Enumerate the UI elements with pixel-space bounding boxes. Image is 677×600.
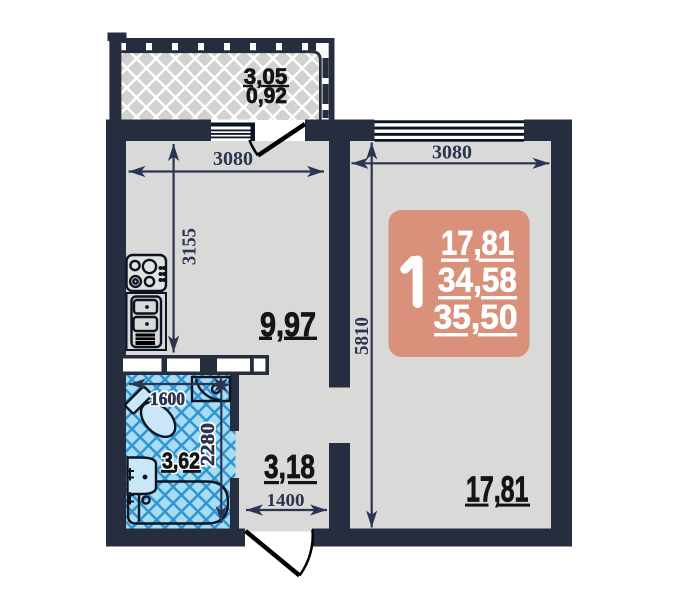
svg-text:17,81: 17,81: [466, 469, 529, 510]
svg-text:3,62: 3,62: [162, 448, 200, 474]
svg-text:1600: 1600: [150, 389, 185, 410]
svg-text:34,58: 34,58: [438, 262, 517, 300]
svg-text:5810: 5810: [351, 317, 373, 355]
svg-text:3080: 3080: [213, 148, 253, 170]
svg-text:3,18: 3,18: [264, 448, 315, 485]
svg-text:3080: 3080: [432, 142, 472, 164]
svg-text:3155: 3155: [179, 228, 201, 265]
svg-text:2280: 2280: [197, 423, 219, 466]
svg-text:0,92: 0,92: [246, 83, 287, 108]
svg-text:1400: 1400: [267, 490, 305, 510]
svg-text:17,81: 17,81: [441, 225, 514, 263]
svg-text:35,50: 35,50: [434, 299, 518, 337]
